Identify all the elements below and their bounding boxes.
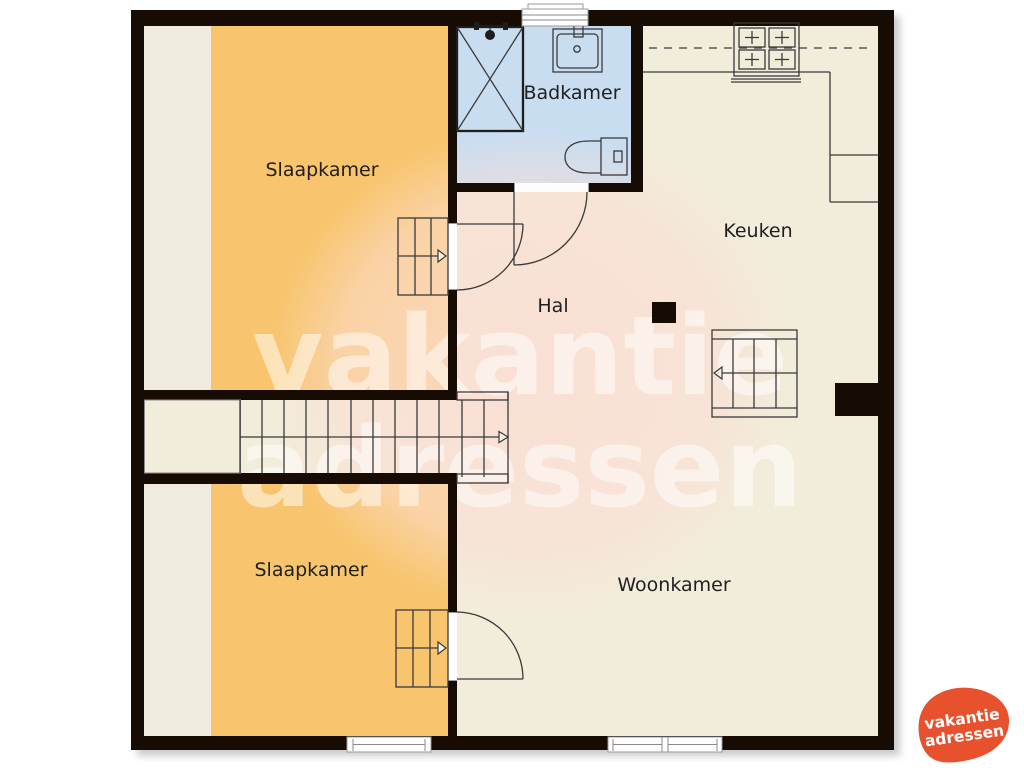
room-label-hall: Hal	[537, 295, 568, 317]
wall-segment	[448, 26, 457, 223]
corridor-bottom-wall	[144, 473, 457, 484]
room-label-bedroom-top: Slaapkamer	[265, 159, 378, 181]
wall-segment	[448, 679, 457, 736]
corridor-top-wall	[144, 390, 457, 400]
vakantieadressen-logo: vakantie adressen	[915, 686, 1011, 764]
room-label-bedroom-bottom: Slaapkamer	[254, 559, 367, 581]
floor-plan: vakantie adressen	[0, 0, 1024, 768]
watermark-line2: adressen	[150, 412, 890, 524]
door-opening-bedroom-bottom	[448, 612, 457, 681]
bathroom-east-wall	[631, 26, 643, 192]
room-label-living-room: Woonkamer	[617, 574, 730, 596]
watermark-text: vakantie adressen	[150, 300, 890, 524]
door-opening-bedroom-top	[448, 223, 457, 290]
room-label-kitchen: Keuken	[723, 220, 792, 242]
room-label-bathroom: Badkamer	[523, 82, 620, 104]
wall-segment	[448, 484, 457, 612]
door-opening-bathroom	[514, 183, 589, 192]
chimney-block	[652, 302, 676, 323]
wall-stub	[835, 383, 878, 416]
wall-segment	[448, 288, 457, 390]
